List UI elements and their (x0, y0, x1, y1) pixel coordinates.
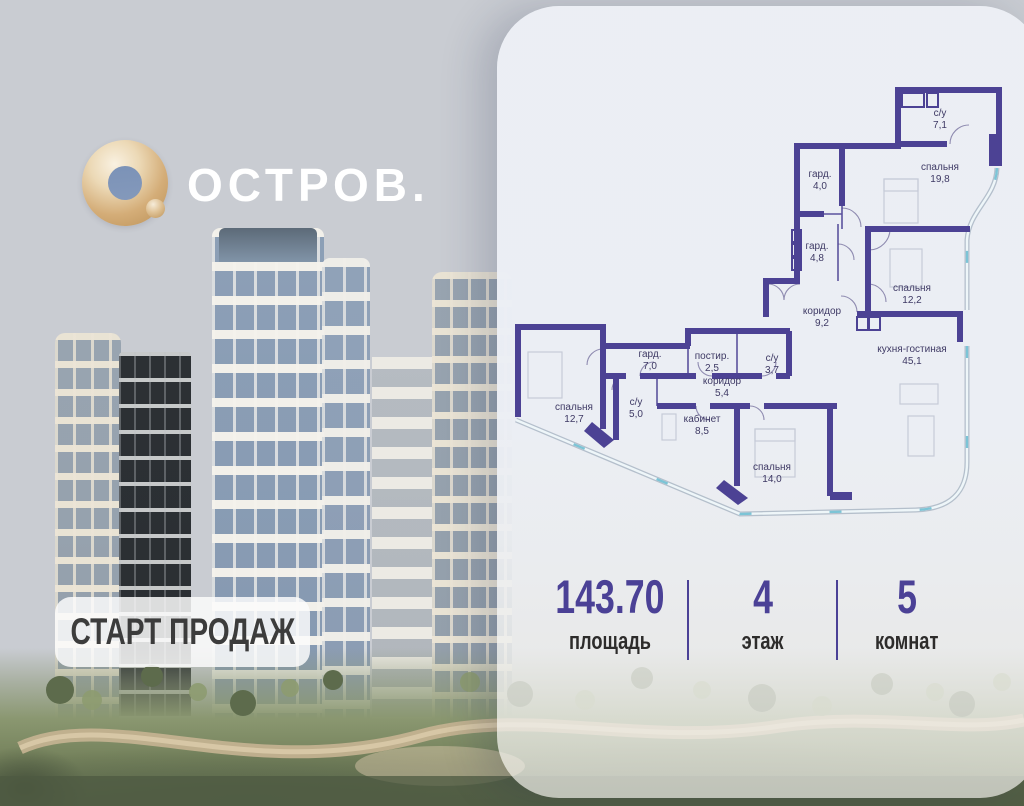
room-label: спальня14,0 (753, 462, 791, 485)
stat-rooms-value: 5 (847, 572, 967, 622)
stat-area-value: 143.70 (525, 572, 695, 622)
room-label: коридор5,4 (703, 376, 742, 399)
room-label: с/у3,7 (765, 353, 779, 376)
stat-divider (687, 580, 689, 660)
floor-plan: с/у7,1 спальня19,8 гард.4,0 гард.4,8 кор… (500, 84, 1022, 538)
stat-area: 143.70 площадь (525, 572, 695, 655)
banner-root: { "logo": { "brand_mark": "О.", "brand_n… (0, 0, 1024, 806)
room-label: гард.4,0 (809, 169, 832, 192)
room-label: с/у7,1 (933, 108, 947, 131)
stat-floor-label: этаж (703, 629, 823, 655)
tower-crown (219, 228, 318, 262)
room-label: с/у5,0 (629, 397, 643, 420)
brand-wordmark: ОСТРОВ. (187, 158, 430, 212)
room-label: гард.4,8 (806, 241, 829, 264)
stat-area-label: площадь (525, 629, 695, 655)
sales-start-label: СТАРТ ПРОДАЖ (70, 611, 295, 653)
stat-floor: 4 этаж (703, 572, 823, 655)
room-label: спальня19,8 (921, 162, 959, 185)
stat-rooms-label: комнат (847, 629, 967, 655)
logo-mark-dot (146, 199, 165, 218)
room-label: кухня-гостиная45,1 (877, 344, 946, 367)
room-label: спальня12,7 (555, 402, 593, 425)
stat-rooms: 5 комнат (847, 572, 967, 655)
room-label: коридор9,2 (803, 306, 842, 329)
stat-divider (836, 580, 838, 660)
plan-wall-piers (584, 134, 1002, 505)
room-label: спальня12,2 (893, 283, 931, 306)
stat-floor-value: 4 (703, 572, 823, 622)
room-label: постир.2,5 (695, 351, 729, 374)
room-label: кабинет8,5 (684, 413, 721, 437)
logo-mark-hole (108, 166, 142, 200)
sales-start-badge: СТАРТ ПРОДАЖ (55, 597, 310, 667)
